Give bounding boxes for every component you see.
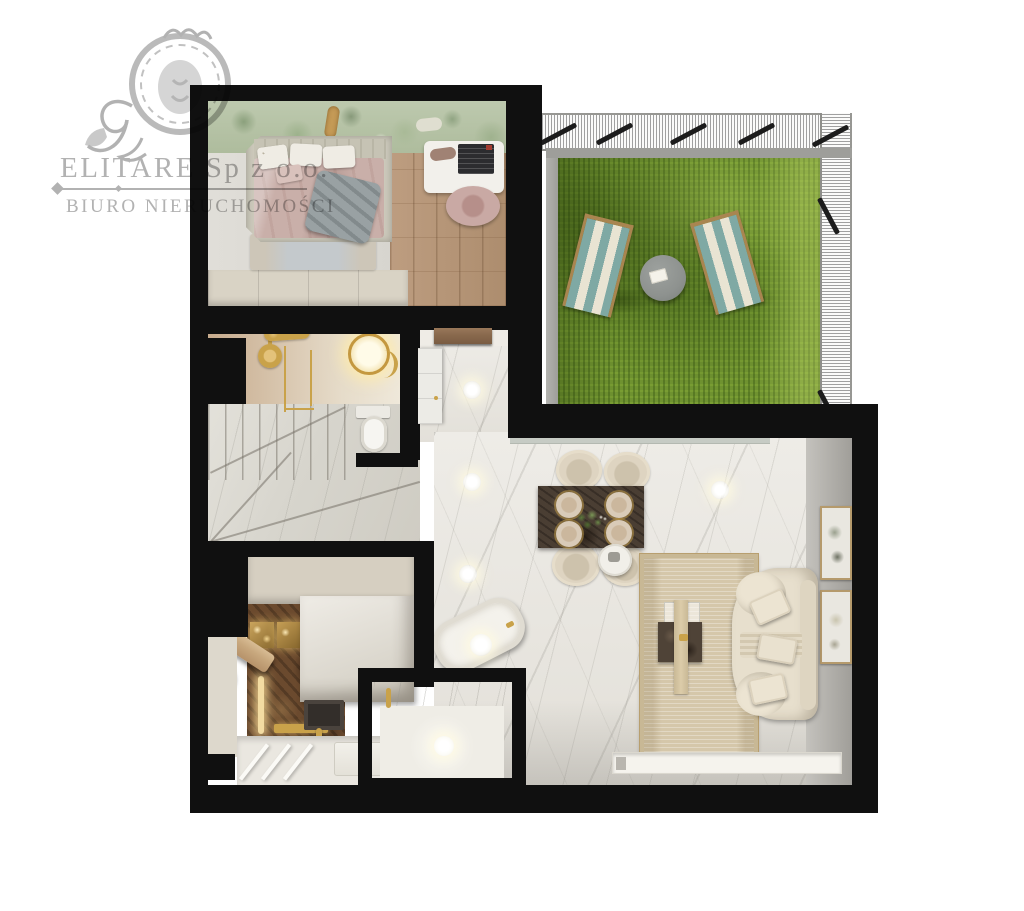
- led-strip-icon: [258, 676, 264, 734]
- toilet-bowl: [361, 416, 387, 452]
- wall: [414, 545, 434, 687]
- entrance-door-frame: [490, 330, 508, 346]
- lion-crest-icon: [80, 14, 250, 164]
- watermark-company: ELITARE Sp z o.o.: [60, 152, 330, 185]
- tv-console: [612, 752, 842, 774]
- laptop-sticker: [486, 145, 492, 150]
- hallway-closet: [418, 348, 442, 424]
- ceiling-spotlight: [463, 381, 481, 399]
- wall: [356, 453, 418, 467]
- plate-setting: [606, 492, 632, 518]
- gold-tray: [679, 634, 688, 641]
- railing-mesh-right: [820, 113, 852, 415]
- wall-art-frame: [820, 506, 852, 580]
- wall: [852, 414, 878, 806]
- ceiling-spotlight: [711, 481, 729, 499]
- white-flowers: [598, 514, 608, 522]
- kitchen-side-strip: [208, 637, 237, 757]
- lit-niche-icon: [277, 622, 301, 648]
- wall: [506, 85, 542, 335]
- watermark: ELITARE Sp z o.o. BIURO NIERUCHOMOŚCI: [0, 0, 360, 240]
- watermark-tagline: BIURO NIERUCHOMOŚCI: [66, 196, 336, 218]
- sofa-back-cushion: [800, 580, 816, 710]
- shower-glass-partition: [284, 346, 286, 412]
- terrace-concrete-border: [546, 148, 852, 158]
- wall: [208, 553, 248, 637]
- desk-chair: [446, 186, 500, 226]
- wall-art-frame: [820, 590, 852, 664]
- rain-shower-head-icon: [258, 344, 282, 368]
- side-table-item: [608, 552, 620, 562]
- wall: [208, 338, 246, 404]
- closet-knob: [434, 396, 438, 400]
- wall: [508, 404, 878, 438]
- watermark-diamond-small: [115, 185, 122, 192]
- wall: [400, 320, 420, 460]
- tv-console-item: [616, 757, 626, 770]
- ceiling-light: [470, 634, 492, 656]
- shower-glass-partition: [310, 350, 312, 406]
- wall-shower-frame: [358, 668, 526, 792]
- ceiling-spotlight: [459, 565, 477, 583]
- floor-plan-render: ELITARE Sp z o.o. BIURO NIERUCHOMOŚCI: [0, 0, 1024, 911]
- wall: [190, 785, 878, 813]
- dining-chair: [552, 544, 600, 586]
- wall: [205, 754, 235, 780]
- kitchen-sink: [304, 700, 344, 730]
- plate-setting: [606, 520, 632, 546]
- dining-chair: [556, 450, 602, 490]
- table-runner: [674, 600, 688, 694]
- terrace-concrete-border: [546, 148, 558, 404]
- wardrobe: [208, 270, 408, 306]
- watermark-divider: [57, 188, 307, 190]
- ceiling-spotlight: [463, 473, 481, 491]
- shower-sill: [284, 408, 314, 410]
- entrance-door: [434, 328, 492, 344]
